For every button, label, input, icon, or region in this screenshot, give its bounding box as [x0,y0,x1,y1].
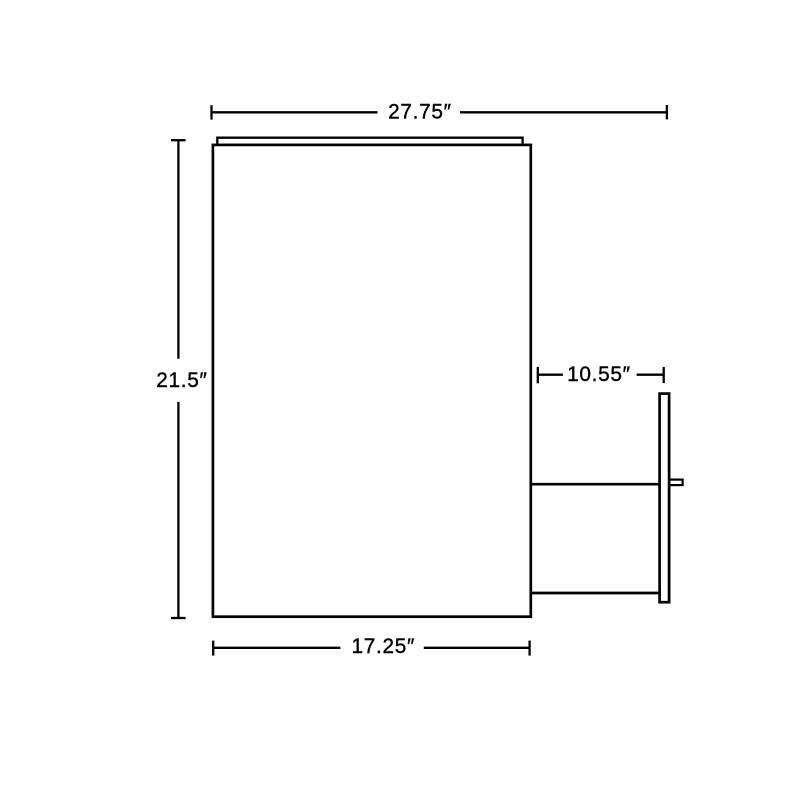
svg-text:21.5″: 21.5″ [156,369,207,392]
svg-text:10.55″: 10.55″ [567,363,631,386]
svg-text:17.25″: 17.25″ [351,635,415,658]
svg-text:27.75″: 27.75″ [388,100,452,123]
